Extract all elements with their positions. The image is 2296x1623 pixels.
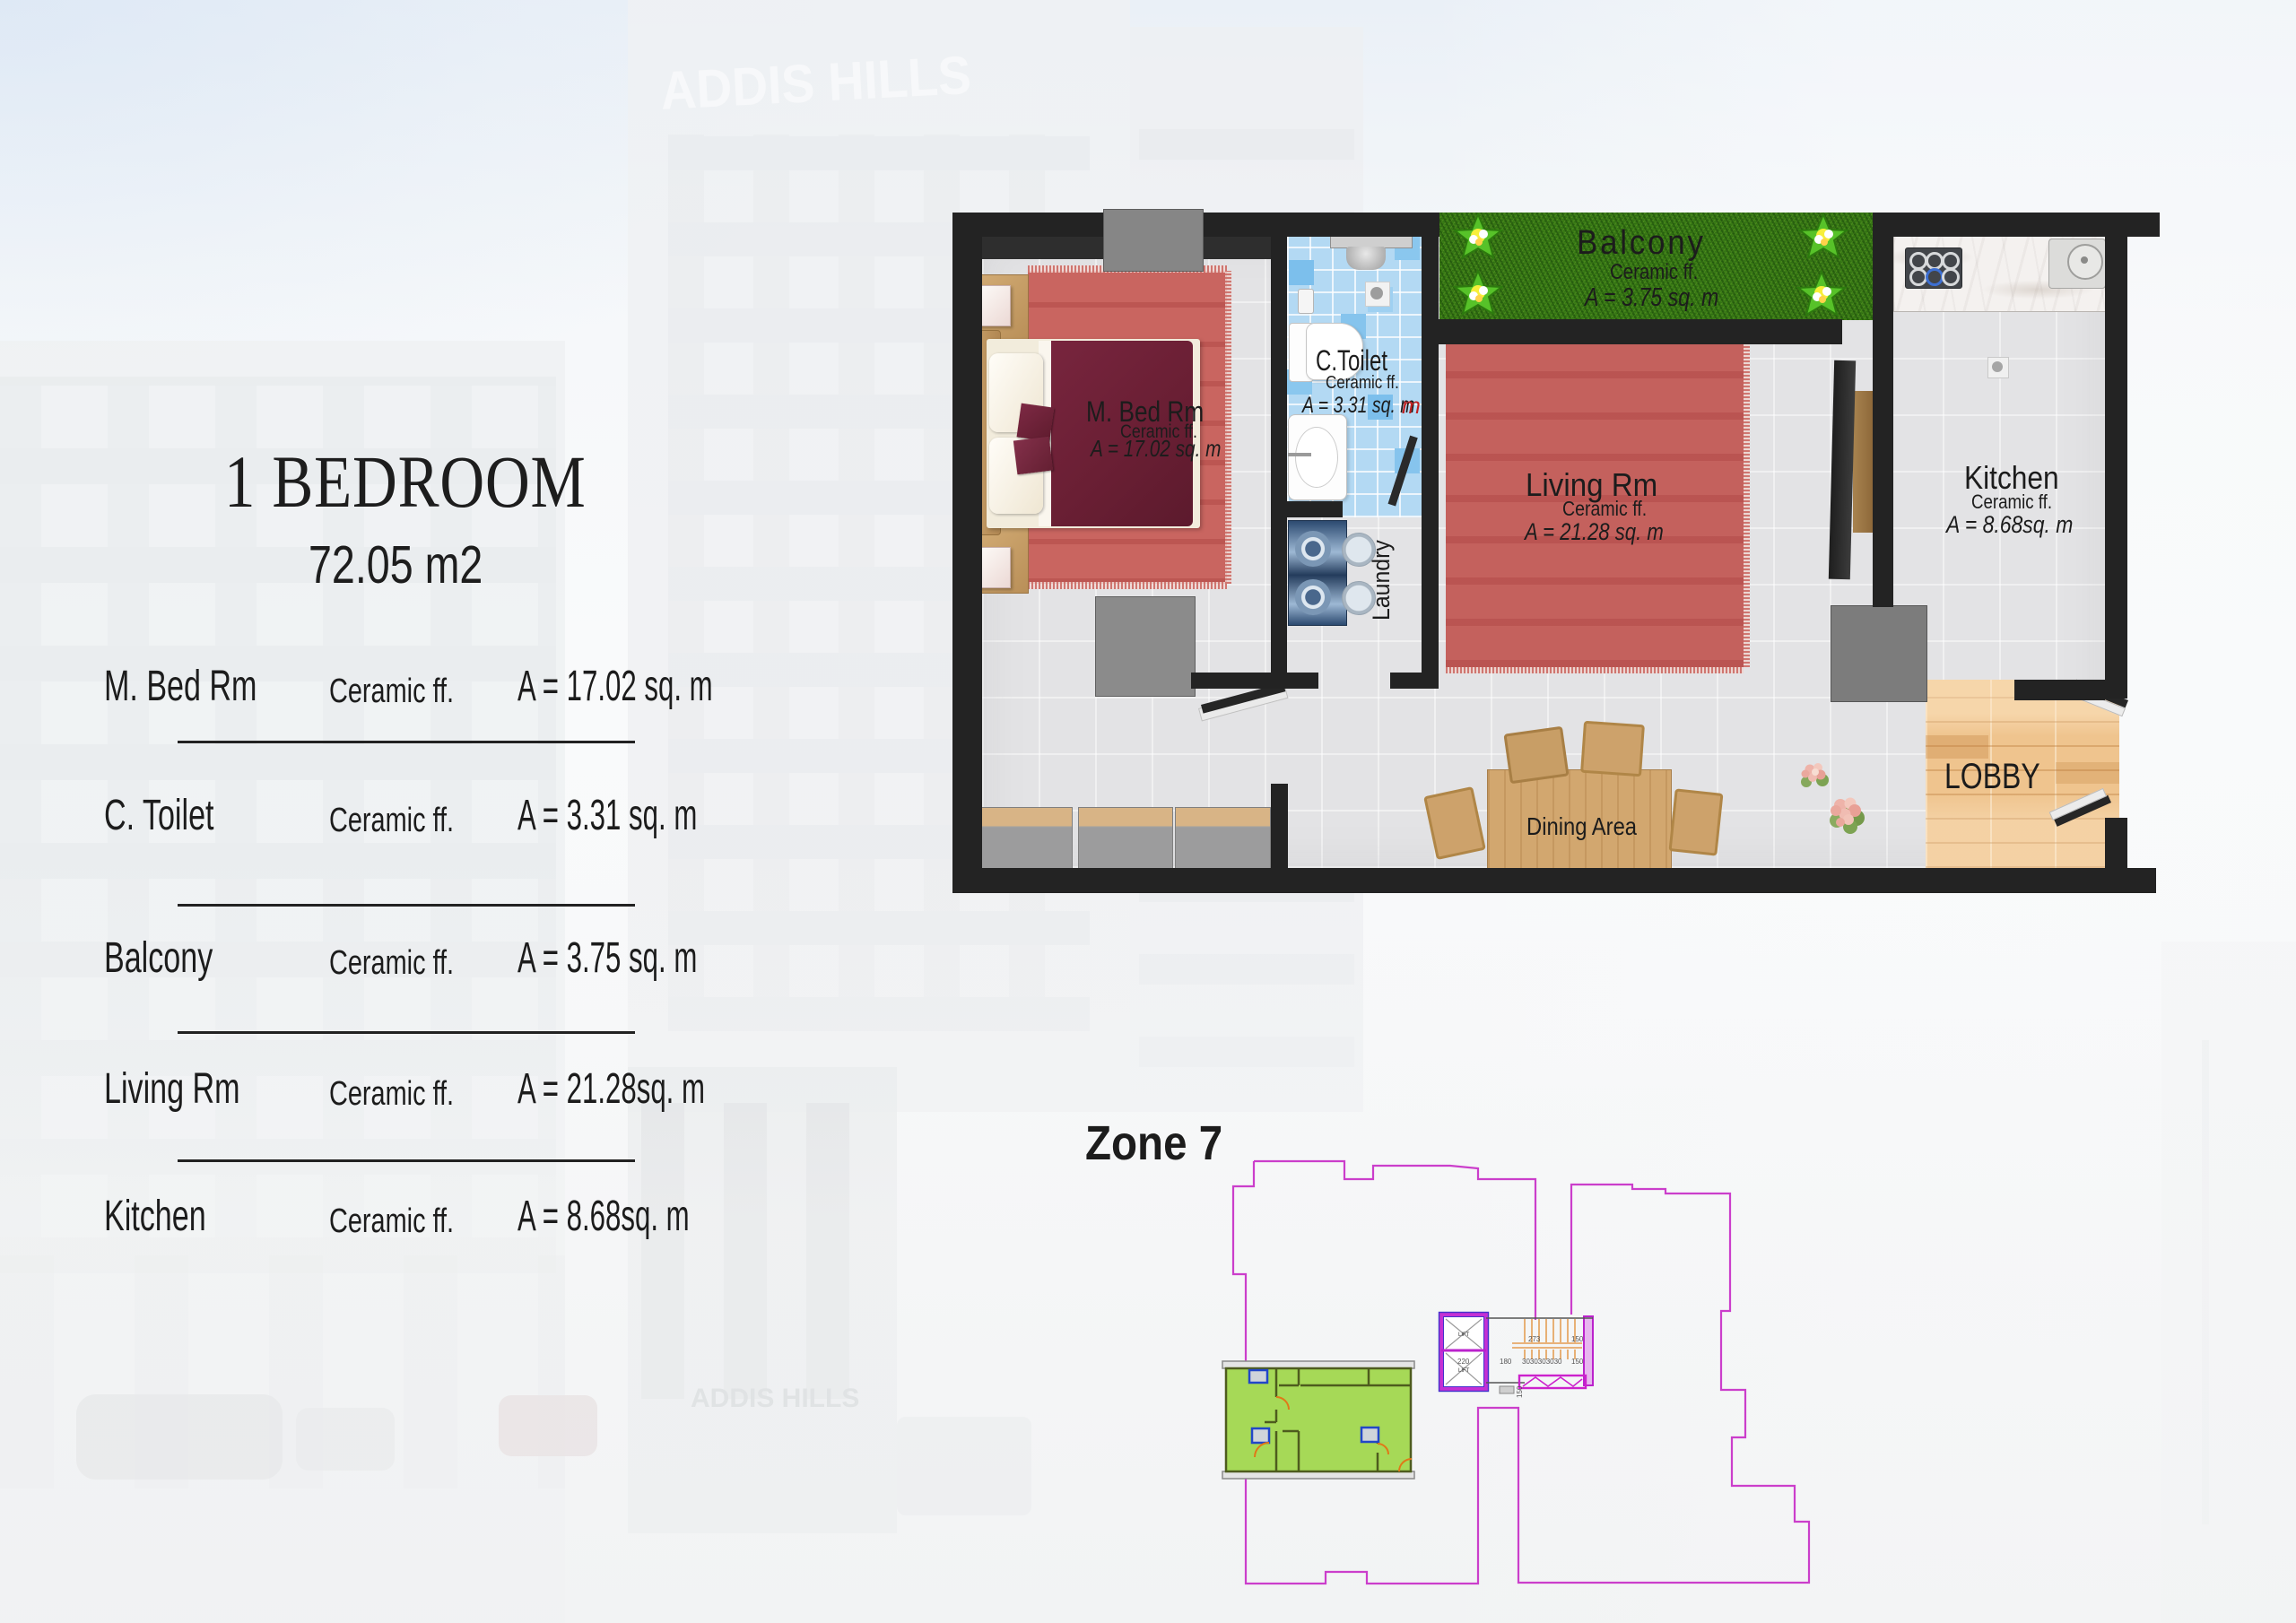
svg-text:LIFT: LIFT — [1458, 1332, 1470, 1338]
svg-text:150: 150 — [1516, 1385, 1524, 1398]
svg-text:150: 150 — [1571, 1335, 1584, 1343]
svg-text:220: 220 — [1457, 1358, 1470, 1366]
svg-text:150: 150 — [1571, 1358, 1584, 1366]
svg-text:273: 273 — [1528, 1335, 1541, 1343]
svg-text:3030303030: 3030303030 — [1522, 1358, 1562, 1366]
svg-text:LIFT: LIFT — [1458, 1368, 1470, 1374]
svg-text:180: 180 — [1500, 1358, 1512, 1366]
